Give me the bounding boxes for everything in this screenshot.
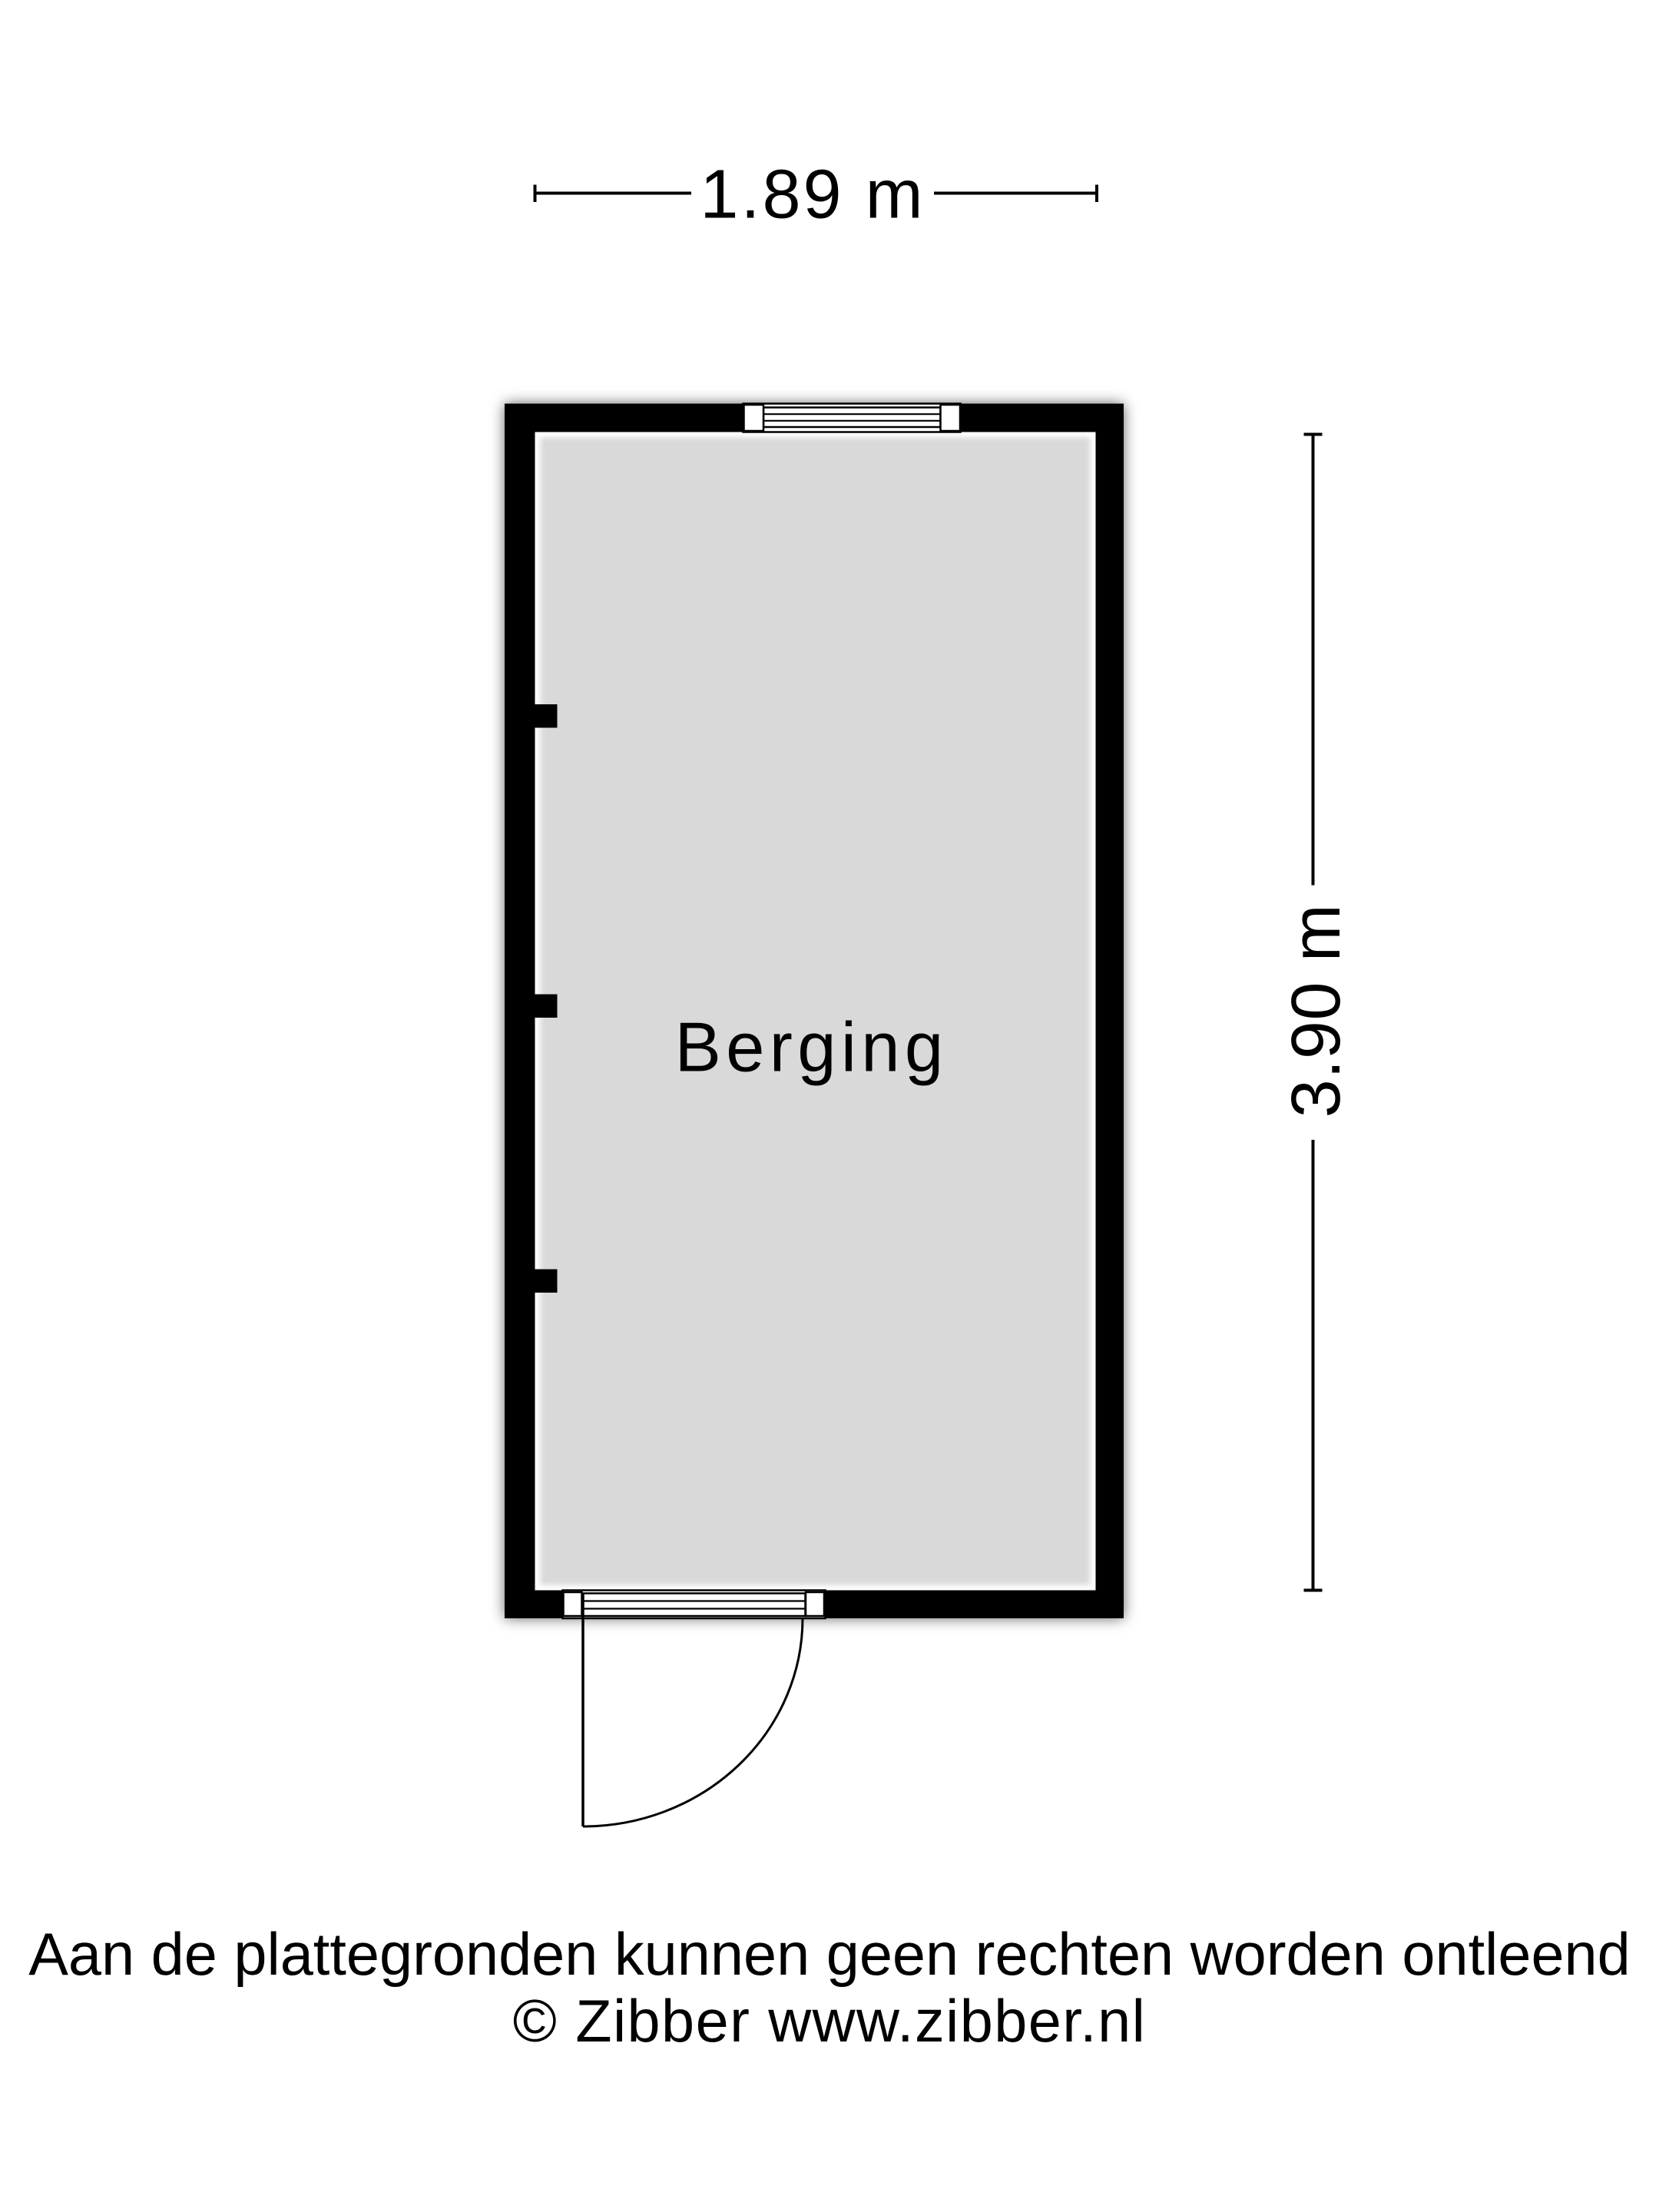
svg-text:Berging: Berging — [674, 1009, 948, 1087]
svg-text:© Zibber www.zibber.nl: © Zibber www.zibber.nl — [513, 1988, 1146, 2055]
svg-text:Aan de plattegronden kunnen ge: Aan de plattegronden kunnen geen rechten… — [28, 1922, 1631, 1988]
svg-text:1.89 m: 1.89 m — [700, 157, 925, 233]
svg-text:3.90 m: 3.90 m — [1278, 904, 1355, 1118]
